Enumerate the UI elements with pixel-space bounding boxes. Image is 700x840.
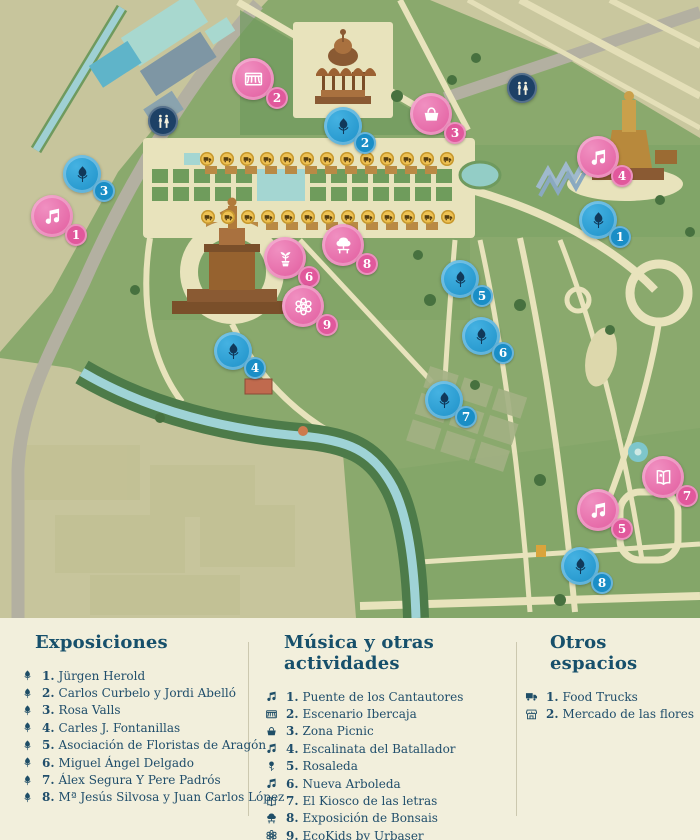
legend-item-label: Mª Jesús Silvosa y Juan Carlos López [59,790,285,804]
marker-number-badge: 8 [591,572,613,594]
legend-item: 9.EcoKids by Urbaser [264,827,509,840]
legend-item-number: 2. [546,707,559,721]
legend-item: 8.Exposición de Bonsais [264,810,509,827]
marker-number-badge: 2 [354,132,376,154]
tulip-icon [72,164,93,185]
legend-item-number: 5. [286,759,299,773]
legend-item: 6.Nueva Arboleda [264,775,509,792]
legend-item-label: Miguel Ángel Delgado [59,756,194,770]
legend-item: 1.Jürgen Herold [20,667,240,684]
marker-number-badge: 4 [611,165,633,187]
wc-icon [514,80,531,97]
legend-item-label: Carles J. Fontanillas [59,721,181,735]
music-icon [264,742,279,755]
legend-item-label: Mercado de las flores [563,707,695,721]
tulip-icon [223,341,244,362]
marker-number-badge: 3 [93,180,115,202]
music-icon [264,777,279,790]
marker-number-badge: 6 [492,342,514,364]
legend-panel: Exposiciones 1.Jürgen Herold2.Carlos Cur… [0,618,700,840]
legend-item-label: Puente de los Cantautores [303,690,464,704]
expo-marker-4[interactable]: 4 [214,332,252,370]
tulip-icon [588,210,609,231]
music-marker-6[interactable]: 6 [264,237,306,279]
marker-number-badge: 3 [444,122,466,144]
legend-list-exposiciones: 1.Jürgen Herold2.Carlos Curbelo y Jordi … [20,667,240,806]
book-icon [653,467,674,488]
legend-item: 4.Carles J. Fontanillas [20,719,240,736]
bonsai-icon [333,235,354,256]
legend-item: 5.Asociación de Floristas de Aragón [20,737,240,754]
tulip-icon [20,669,35,682]
legend-item-number: 1. [42,669,55,683]
legend-item-number: 6. [286,777,299,791]
music-marker-7[interactable]: 7 [642,456,684,498]
legend-title-musica: Música y otras actividades [284,632,509,674]
legend-item: 1.Puente de los Cantautores [264,688,509,705]
legend-list-otros: 1.Food Trucks2.Mercado de las flores [524,688,694,723]
legend-item: 8.Mª Jesús Silvosa y Juan Carlos López [20,789,240,806]
legend-item-number: 2. [286,707,299,721]
marker-number-badge: 7 [455,406,477,428]
tulip-icon [20,721,35,734]
tulip-icon [20,687,35,700]
marker-number-badge: 1 [609,226,631,248]
legend-item-number: 7. [42,773,55,787]
stage-icon [243,69,264,90]
legend-item-label: Álex Segura Y Pere Padrós [59,773,221,787]
legend-item-label: EcoKids by Urbaser [303,829,424,840]
legend-column-otros: Otros espacios 1.Food Trucks2.Mercado de… [524,632,694,723]
legend-item: 2.Escenario Ibercaja [264,705,509,722]
expo-marker-6[interactable]: 6 [462,317,500,355]
marker-number-badge: 5 [471,285,493,307]
book-icon [264,795,279,808]
tulip-icon [570,556,591,577]
wc-icon [155,113,172,130]
legend-divider [516,642,517,816]
tulip-icon [20,774,35,787]
legend-item: 7.El Kiosco de las letras [264,792,509,809]
music-marker-2[interactable]: 2 [232,58,274,100]
legend-title-exposiciones: Exposiciones [35,632,240,653]
legend-item-number: 7. [286,794,299,808]
flower-festival-park-map: 12345678123456789 Exposiciones 1.Jürgen … [0,0,700,840]
tulip-icon [20,739,35,752]
expo-marker-1[interactable]: 1 [579,201,617,239]
legend-item-number: 1. [546,690,559,704]
legend-item-number: 4. [286,742,299,756]
truck-icon [524,690,539,703]
legend-item-label: Exposición de Bonsais [303,811,438,825]
legend-item: 3.Rosa Valls [20,702,240,719]
legend-item-number: 3. [286,724,299,738]
legend-item-label: Asociación de Floristas de Aragón [59,738,267,752]
tulip-icon [20,791,35,804]
music-icon [264,690,279,703]
expo-marker-2[interactable]: 2 [324,107,362,145]
legend-item: 2.Carlos Curbelo y Jordi Abelló [20,684,240,701]
picnic-icon [264,725,279,738]
legend-item: 5.Rosaleda [264,758,509,775]
tulip-icon [20,704,35,717]
market-icon [524,708,539,721]
legend-item-number: 5. [42,738,55,752]
music-marker-8[interactable]: 8 [322,224,364,266]
music-icon [588,500,609,521]
tulip-icon [471,326,492,347]
tulip-icon [434,390,455,411]
legend-column-exposiciones: Exposiciones 1.Jürgen Herold2.Carlos Cur… [20,632,240,806]
expo-marker-5[interactable]: 5 [441,260,479,298]
legend-item-label: Carlos Curbelo y Jordi Abelló [59,686,236,700]
tulip-icon [450,269,471,290]
marker-number-badge: 8 [356,253,378,275]
sapling-icon [275,248,296,269]
legend-item-number: 4. [42,721,55,735]
marker-number-badge: 7 [676,485,698,507]
legend-item-label: Nueva Arboleda [303,777,401,791]
legend-item-number: 3. [42,703,55,717]
marker-number-badge: 9 [316,314,338,336]
legend-item: 2.Mercado de las flores [524,705,694,722]
legend-item: 6.Miguel Ángel Delgado [20,754,240,771]
tulip-icon [20,756,35,769]
legend-item: 4.Escalinata del Batallador [264,740,509,757]
park-map[interactable]: 12345678123456789 [0,0,700,618]
legend-item-number: 2. [42,686,55,700]
legend-item-number: 9. [286,829,299,840]
music-icon [42,206,63,227]
legend-item-label: Rosa Valls [59,703,121,717]
music-marker-4[interactable]: 4 [577,136,619,178]
flower-icon [264,829,279,840]
legend-item: 7.Álex Segura Y Pere Padrós [20,771,240,788]
picnic-icon [421,104,442,125]
legend-item-number: 8. [42,790,55,804]
expo-marker-8[interactable]: 8 [561,547,599,585]
legend-item-label: El Kiosco de las letras [303,794,438,808]
expo-marker-3[interactable]: 3 [63,155,101,193]
legend-item-label: Rosaleda [303,759,358,773]
music-marker-1[interactable]: 1 [31,195,73,237]
marker-number-badge: 1 [65,224,87,246]
wc-marker[interactable] [507,73,537,103]
tulip-icon [333,116,354,137]
marker-number-badge: 2 [266,87,288,109]
legend-item-number: 8. [286,811,299,825]
music-marker-9[interactable]: 9 [282,285,324,327]
legend-item-label: Zona Picnic [303,724,374,738]
legend-list-musica: 1.Puente de los Cantautores2.Escenario I… [264,688,509,840]
stage-icon [264,708,279,721]
legend-item-number: 6. [42,756,55,770]
bonsai-icon [264,812,279,825]
music-marker-5[interactable]: 5 [577,489,619,531]
legend-item-label: Escalinata del Batallador [303,742,456,756]
expo-marker-7[interactable]: 7 [425,381,463,419]
rose-icon [264,760,279,773]
legend-item-label: Food Trucks [563,690,638,704]
legend-column-musica: Música y otras actividades 1.Puente de l… [264,632,509,840]
wc-marker[interactable] [148,106,178,136]
legend-item: 1.Food Trucks [524,688,694,705]
marker-number-badge: 4 [244,357,266,379]
music-icon [588,147,609,168]
flower-icon [293,296,314,317]
music-marker-3[interactable]: 3 [410,93,452,135]
legend-item-label: Jürgen Herold [59,669,146,683]
legend-item-label: Escenario Ibercaja [303,707,417,721]
marker-number-badge: 5 [611,518,633,540]
legend-item: 3.Zona Picnic [264,723,509,740]
map-marker-layer: 12345678123456789 [0,0,700,618]
legend-title-otros: Otros espacios [550,632,694,674]
legend-item-number: 1. [286,690,299,704]
